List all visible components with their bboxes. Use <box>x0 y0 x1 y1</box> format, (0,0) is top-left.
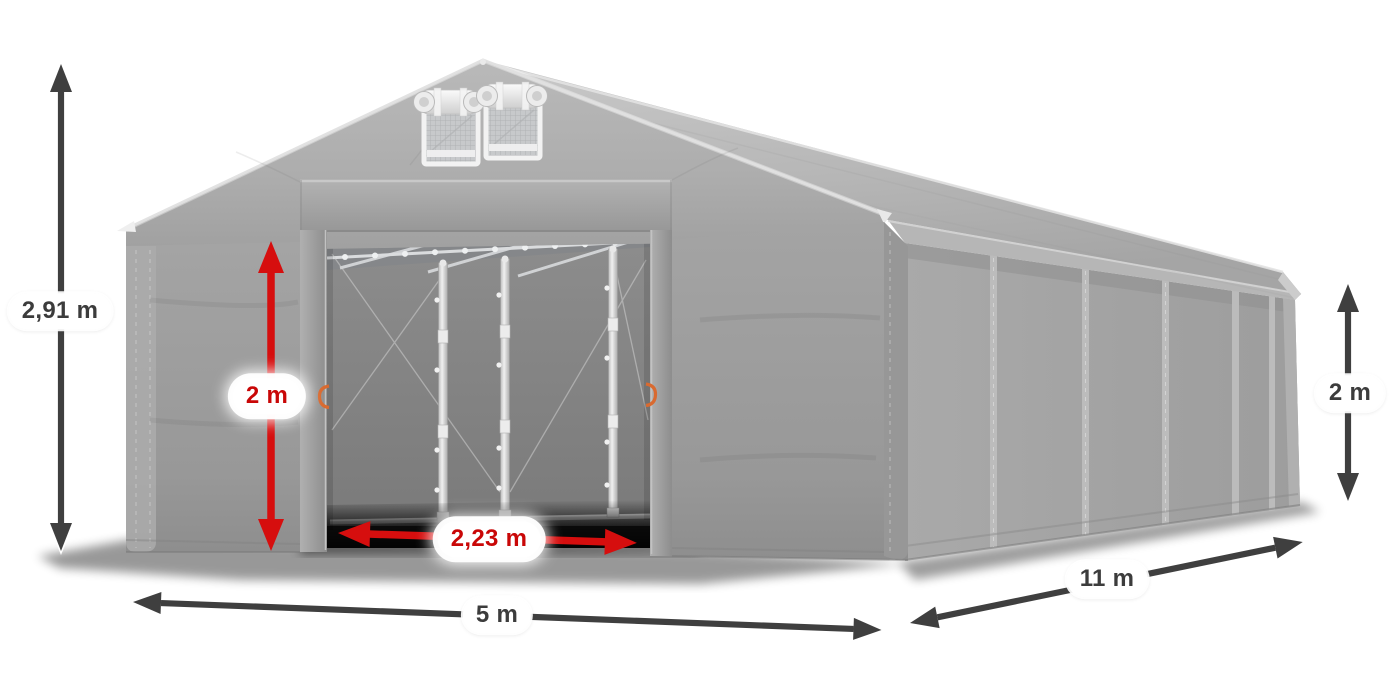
tent-illustration: 2,91 m 5 m 11 m 2 m 2 m 2,23 m <box>0 0 1400 700</box>
gable-vent-left <box>414 88 485 164</box>
gable-vent-right <box>477 82 548 158</box>
corner-pillar-right <box>884 222 908 560</box>
dimension-label-entrance-width: 2,23 m <box>438 521 541 557</box>
dimension-label-side-height: 2 m <box>1316 375 1384 411</box>
dimension-label-entrance-height: 2 m <box>233 378 301 414</box>
dimension-label-total-height: 2,91 m <box>9 293 112 329</box>
corner-pillar-left <box>126 246 156 552</box>
tent-graphic <box>0 0 1400 700</box>
dimension-label-side-length: 11 m <box>1067 561 1148 597</box>
door-post-right <box>650 230 672 556</box>
entrance-interior <box>327 230 650 548</box>
door-post-left <box>300 230 327 552</box>
dimension-label-front-width: 5 m <box>463 597 531 633</box>
entrance-header <box>300 180 672 232</box>
